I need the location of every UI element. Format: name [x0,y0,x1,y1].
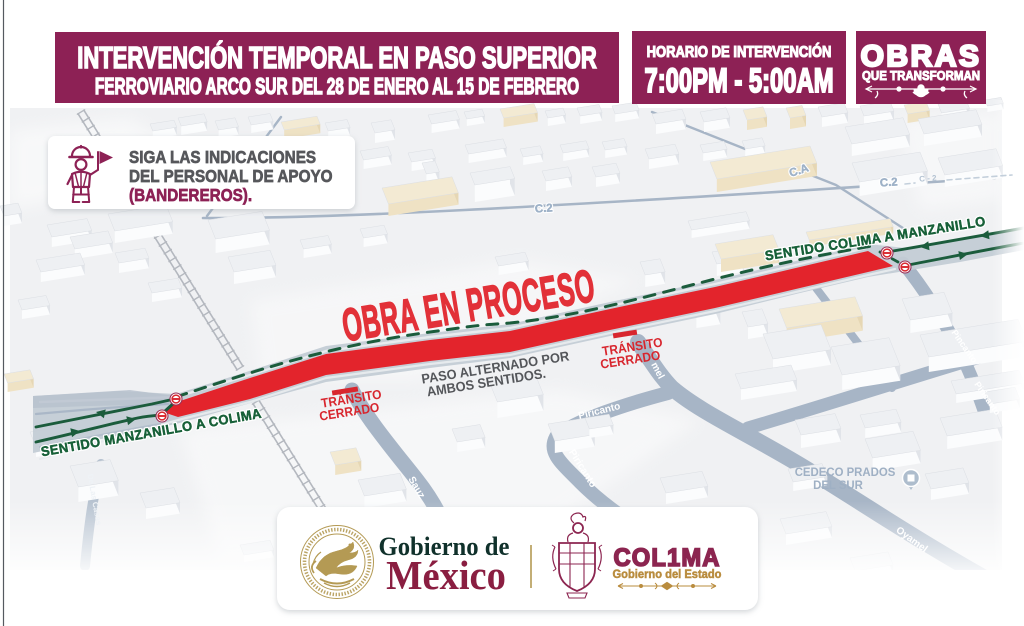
svg-text:C - 2: C - 2 [919,173,937,183]
svg-text:QUE TRANSFORMAN: QUE TRANSFORMAN [862,69,980,84]
svg-text:SIGA LAS INDICACIONES: SIGA LAS INDICACIONES [129,147,316,167]
svg-text:(BANDEREROS).: (BANDEREROS). [129,185,252,205]
svg-text:DEL PERSONAL DE APOYO: DEL PERSONAL DE APOYO [129,166,333,186]
svg-text:C.2: C.2 [534,202,553,215]
svg-text:Gobierno del Estado: Gobierno del Estado [612,567,721,581]
svg-text:INTERVENCIÓN TEMPORAL EN PASO: INTERVENCIÓN TEMPORAL EN PASO SUPERIOR [77,39,597,75]
svg-text:México: México [386,553,506,598]
svg-text:DEL SUR: DEL SUR [813,479,863,492]
svg-text:C.2: C.2 [879,176,898,189]
svg-text:7:00PM - 5:00AM: 7:00PM - 5:00AM [644,62,833,100]
svg-text:FERROVIARIO ARCO SUR DEL 28 DE: FERROVIARIO ARCO SUR DEL 28 DE ENERO AL … [95,74,579,100]
svg-text:CEDECO PRADOS: CEDECO PRADOS [795,466,896,479]
svg-text:HORARIO DE INTERVENCIÓN: HORARIO DE INTERVENCIÓN [647,42,832,61]
